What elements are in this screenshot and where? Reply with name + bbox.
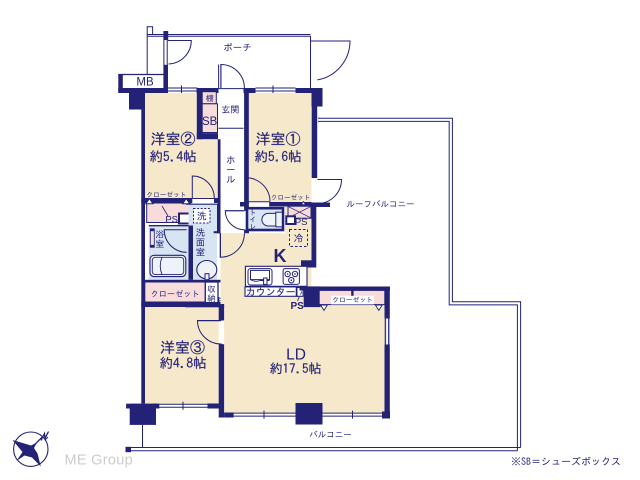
svg-text:SB: SB <box>202 116 218 128</box>
svg-text:LD: LD <box>286 347 306 364</box>
svg-text:MB: MB <box>136 77 154 89</box>
svg-text:PS: PS <box>295 217 308 228</box>
svg-text:PS: PS <box>291 301 305 312</box>
svg-text:ME Group: ME Group <box>65 453 133 469</box>
svg-text:K: K <box>274 246 287 266</box>
svg-text:PS: PS <box>165 215 178 226</box>
